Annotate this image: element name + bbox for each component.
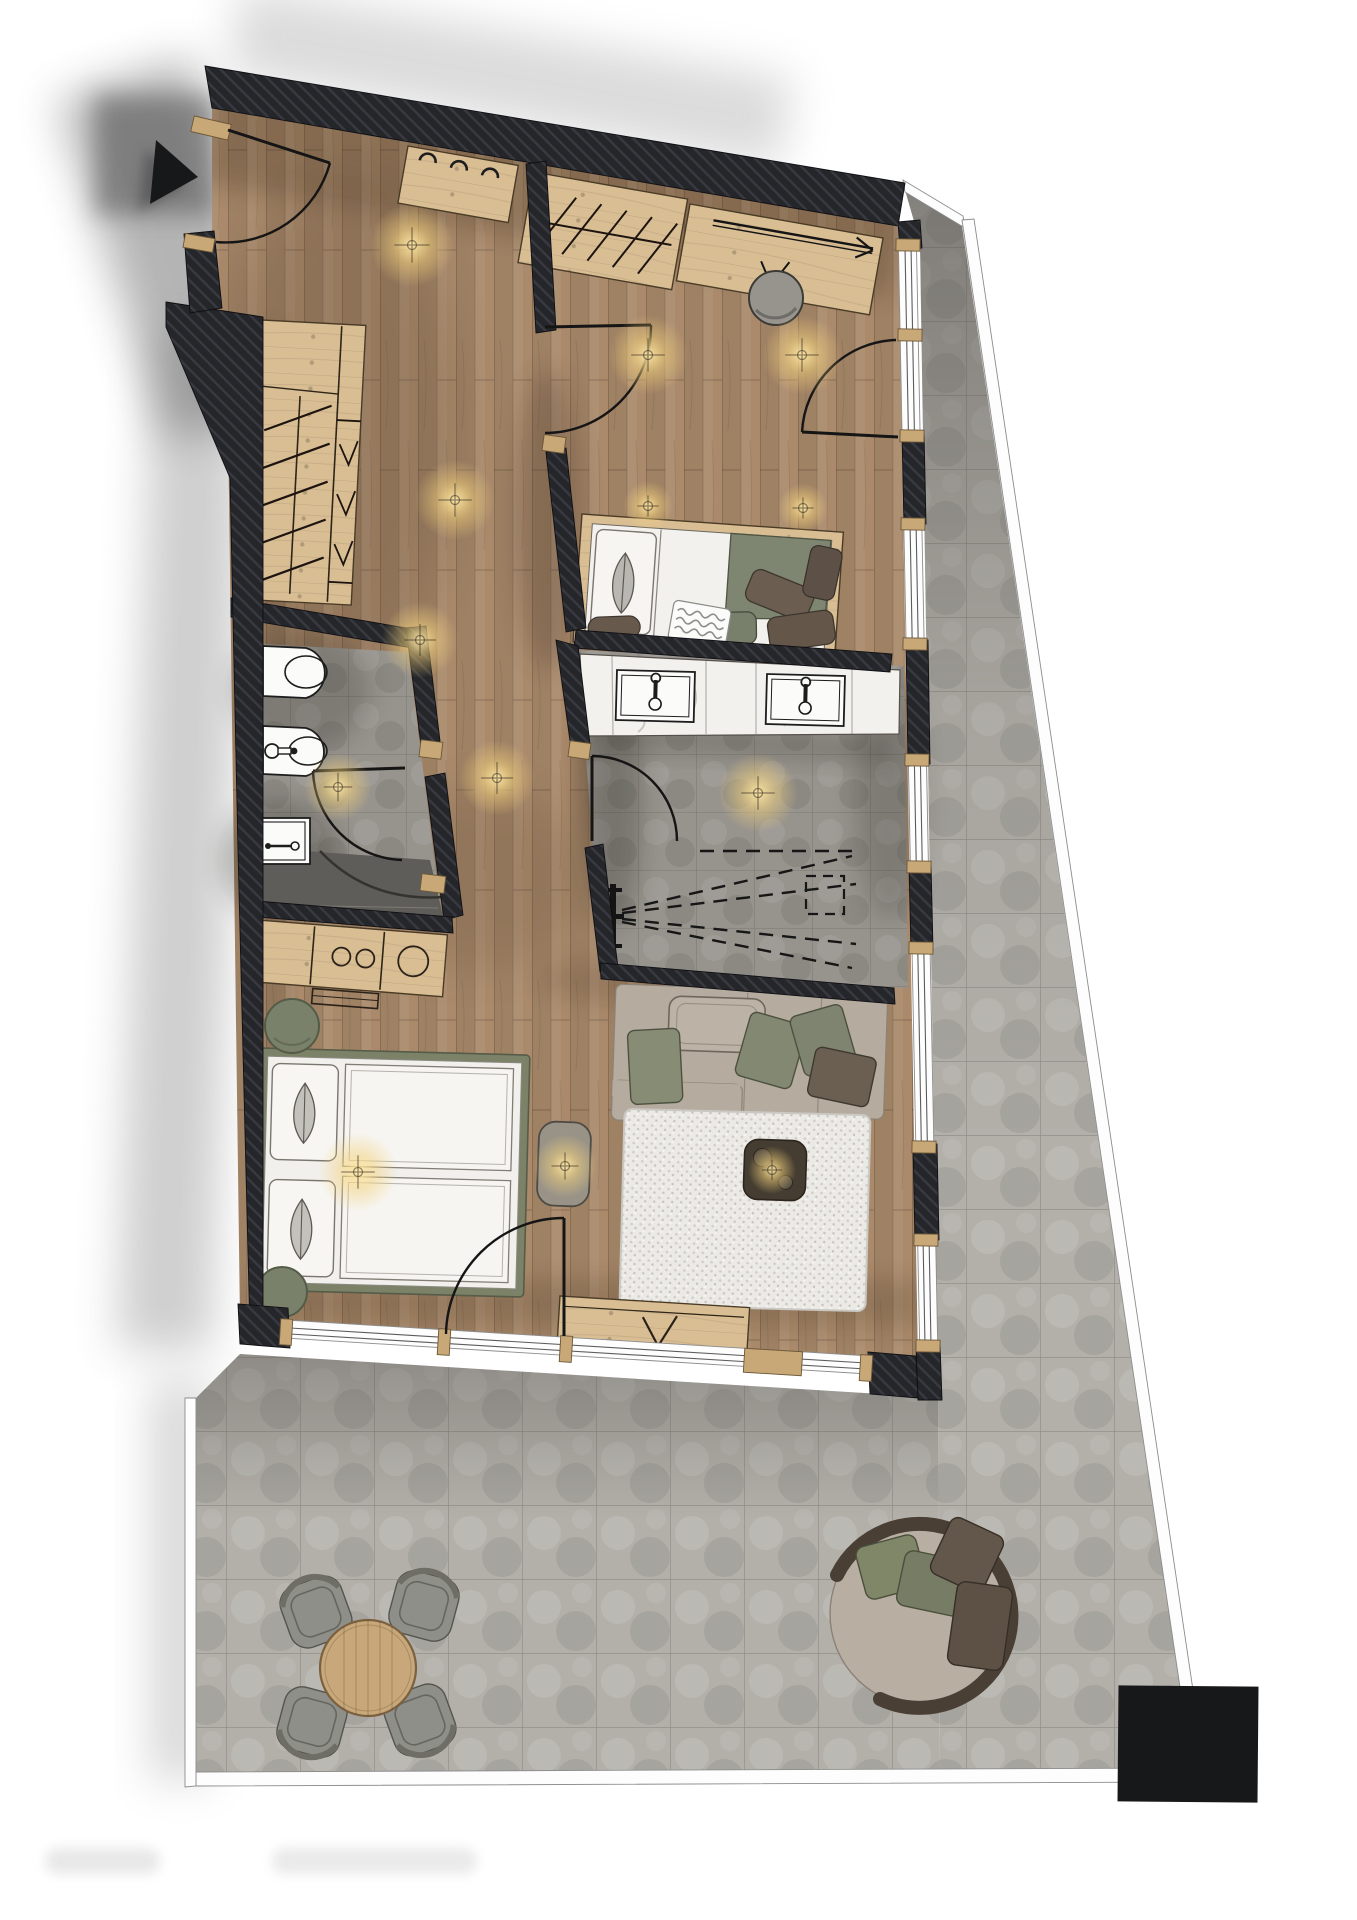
sink-right (766, 674, 845, 726)
wall-stub-r1 (902, 432, 926, 526)
wall-stub-r2 (909, 864, 933, 952)
watermark (45, 1848, 477, 1874)
daybed-pillow-brown-2 (946, 1581, 1013, 1672)
wall-stub-br (868, 1352, 918, 1398)
sill-bottom-wide (743, 1348, 802, 1375)
rug (619, 1109, 870, 1311)
wall-stub-bath (906, 640, 930, 766)
floor-plan (0, 0, 1357, 1920)
terrace-frame-left (185, 1398, 196, 1787)
floor-plan-page (0, 0, 1357, 1920)
sofa-pillow-olive-1 (627, 1028, 683, 1105)
toilet (263, 646, 327, 698)
terrace-table (320, 1620, 416, 1716)
wall-left (166, 302, 263, 1333)
terrace-daybed (830, 1515, 1014, 1708)
entry-arrow-icon (150, 140, 198, 204)
utility-block (1117, 1685, 1258, 1802)
sink-left (616, 670, 695, 722)
wall-stub-r3 (913, 1144, 939, 1242)
entry-arrow (138, 140, 198, 212)
sofa (611, 984, 888, 1129)
hall-wardrobe (247, 320, 366, 605)
